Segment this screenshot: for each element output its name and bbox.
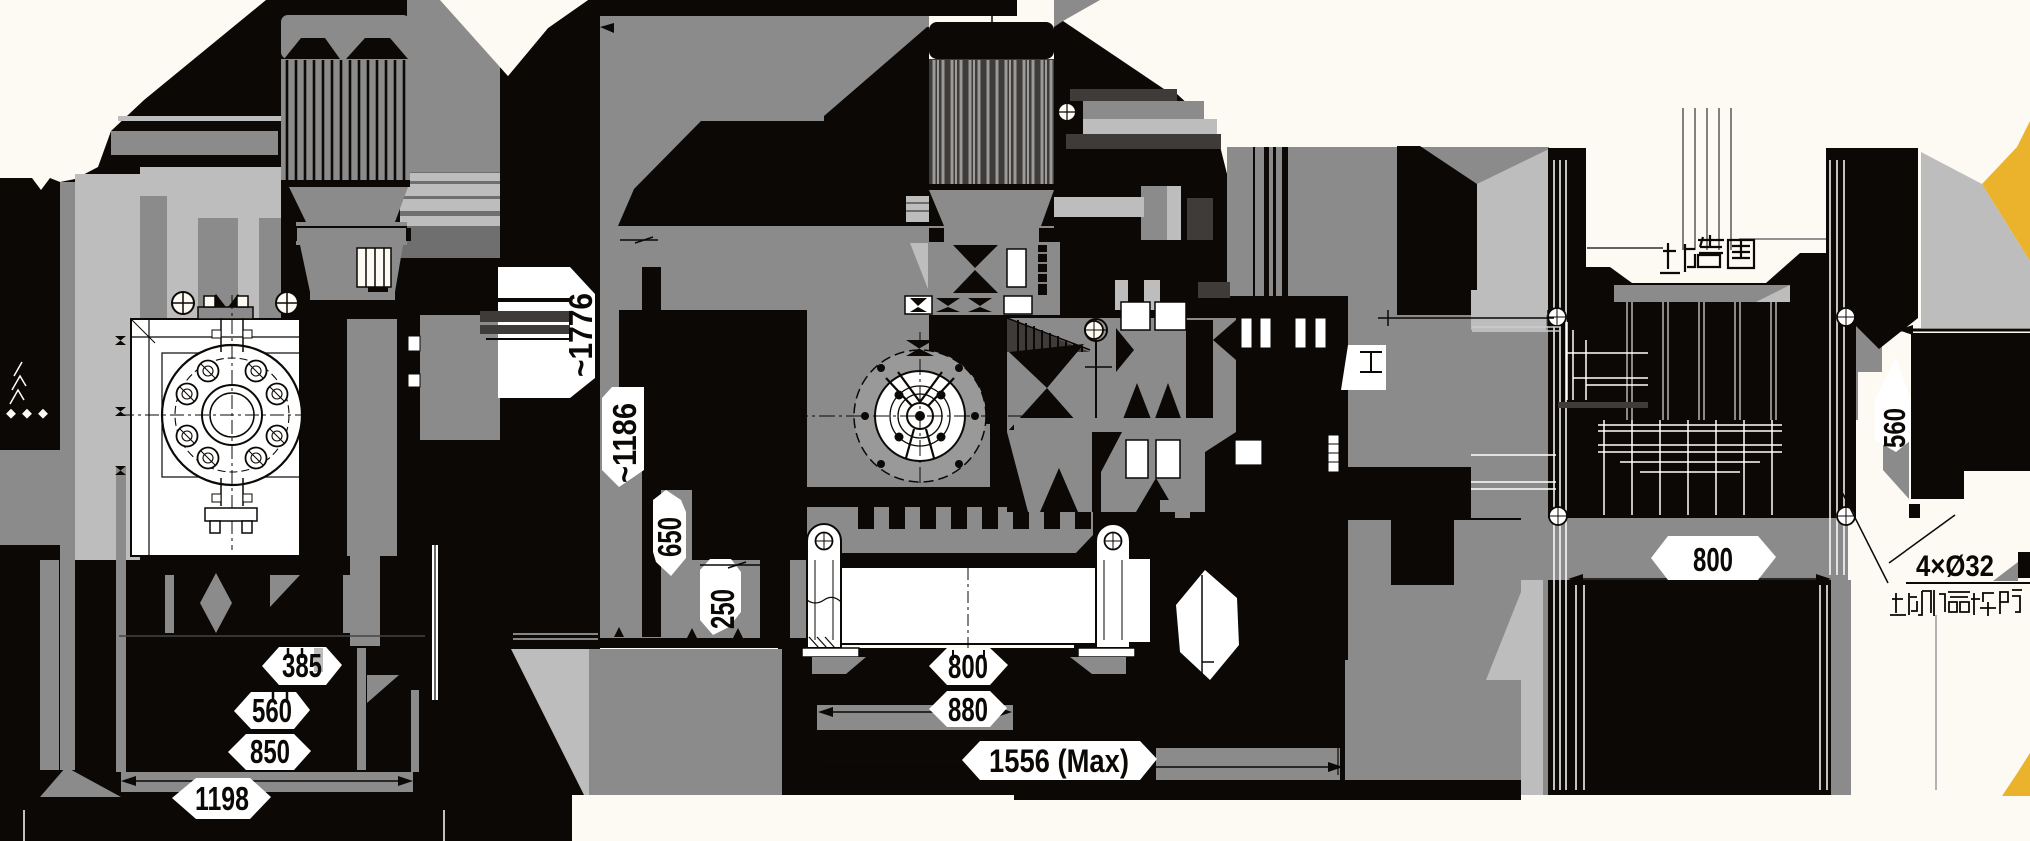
svg-text:800: 800 (948, 648, 988, 685)
svg-text:560: 560 (252, 692, 292, 729)
svg-text:250: 250 (704, 589, 741, 629)
svg-text:1556 (Max): 1556 (Max) (989, 743, 1129, 779)
svg-text:4×Ø32: 4×Ø32 (1916, 550, 1994, 583)
svg-text:~1776: ~1776 (562, 293, 599, 377)
svg-text:850: 850 (250, 733, 290, 770)
svg-text:1198: 1198 (195, 780, 249, 817)
svg-text:560: 560 (1877, 408, 1912, 448)
svg-text:800: 800 (1693, 541, 1733, 578)
svg-text:650: 650 (651, 517, 688, 557)
svg-text:385: 385 (282, 647, 322, 684)
svg-text:~1186: ~1186 (606, 403, 643, 483)
svg-text:880: 880 (948, 691, 988, 728)
